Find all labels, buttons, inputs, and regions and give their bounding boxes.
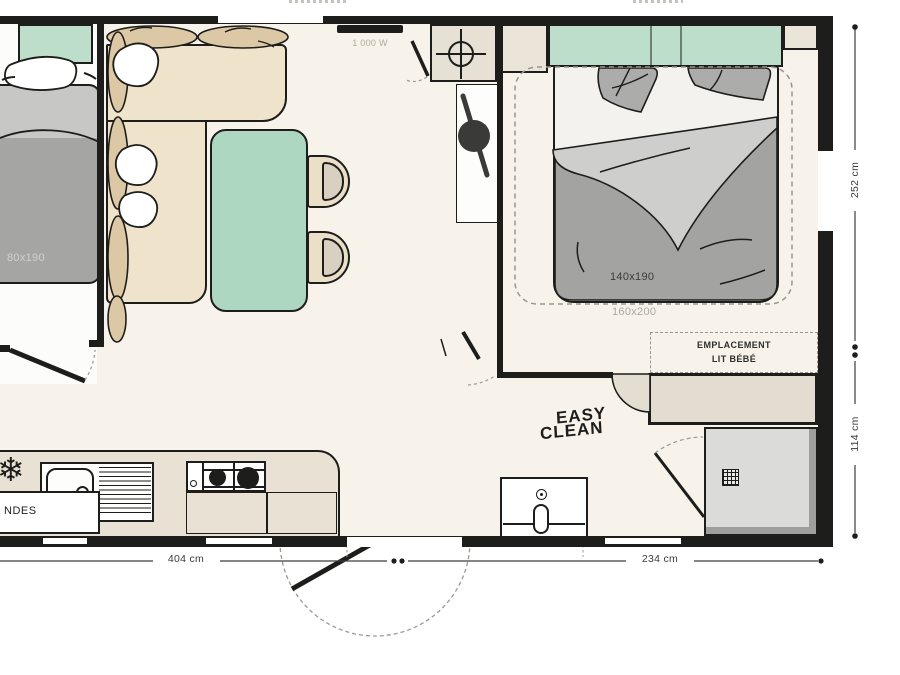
dimension-bottom-left: 404 cm [156, 553, 216, 565]
bathroom-inner-door [441, 332, 495, 385]
wall-partition-center [497, 24, 503, 378]
dimension-bottom-right: 234 cm [630, 553, 690, 565]
double-bedroom-door [406, 41, 428, 81]
small-bed-size-label: 80x190 [7, 252, 45, 264]
entrance-door [280, 541, 470, 636]
window-bottom [604, 537, 682, 545]
double-bed-outline-label: 160x200 [612, 306, 656, 318]
clipped-dimension-label [633, 0, 683, 3]
window-bottom [42, 537, 88, 545]
heater-power-label: 1 000 W [337, 38, 403, 48]
dimension-right-upper: 252 cm [849, 162, 861, 198]
floorplan-canvas: EMPLACEMENT LIT BÉBÉ ❄ NDES [0, 0, 900, 675]
microwave-label-clipped: NDES [4, 505, 37, 517]
wall-right [818, 16, 833, 547]
double-bed-pillows [598, 68, 770, 112]
window-bottom [205, 537, 273, 545]
wall-partition-small-bedroom [97, 24, 104, 347]
lineart-overlay [0, 0, 900, 675]
clipped-dimension-label [289, 0, 347, 3]
water-heater-icon [458, 96, 490, 175]
ceiling-vent-icon [436, 29, 486, 79]
wall-partition-stub [89, 340, 104, 347]
double-bed-size-label: 140x190 [610, 271, 654, 283]
small-bed-pillow [5, 57, 76, 90]
wall-bathroom-top [497, 372, 613, 378]
entrance-door-opening [347, 536, 462, 547]
shower-door [655, 437, 704, 517]
wall-hinge-stub [0, 345, 10, 352]
hall-door [612, 374, 650, 412]
window-top [218, 16, 323, 24]
small-bedroom-door [10, 350, 95, 381]
small-bed-fold-line [0, 130, 101, 143]
window-right [818, 150, 833, 232]
wall-top [0, 16, 833, 24]
dimension-right-lower: 114 cm [849, 416, 861, 451]
